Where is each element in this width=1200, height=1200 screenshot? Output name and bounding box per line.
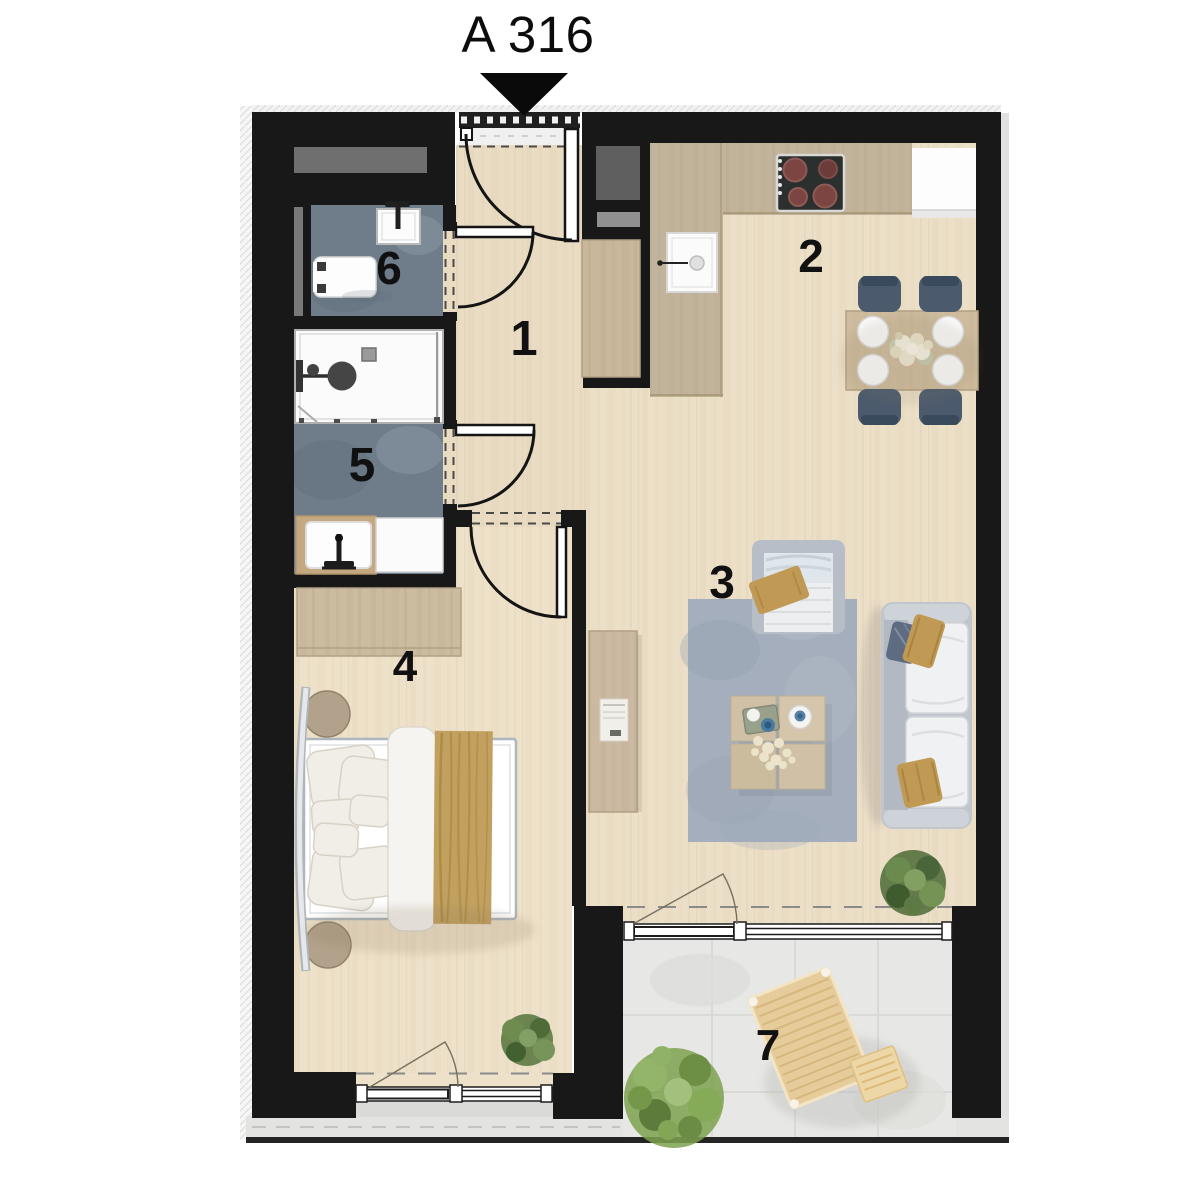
svg-text:4: 4 [393,642,418,691]
svg-text:1: 1 [510,312,537,366]
svg-text:2: 2 [798,230,824,282]
svg-text:6: 6 [376,242,402,294]
svg-text:A 316: A 316 [462,6,595,63]
svg-text:7: 7 [756,1021,780,1070]
svg-text:3: 3 [709,556,735,608]
svg-text:5: 5 [349,439,376,492]
